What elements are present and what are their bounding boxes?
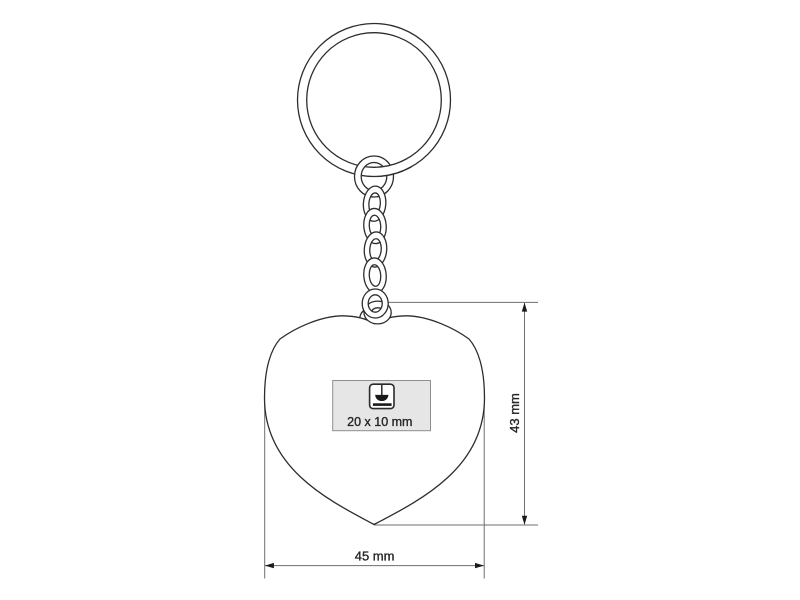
svg-text:45 mm: 45 mm (355, 549, 395, 564)
svg-text:20 x 10 mm: 20 x 10 mm (347, 415, 412, 429)
svg-text:43 mm: 43 mm (507, 393, 522, 433)
